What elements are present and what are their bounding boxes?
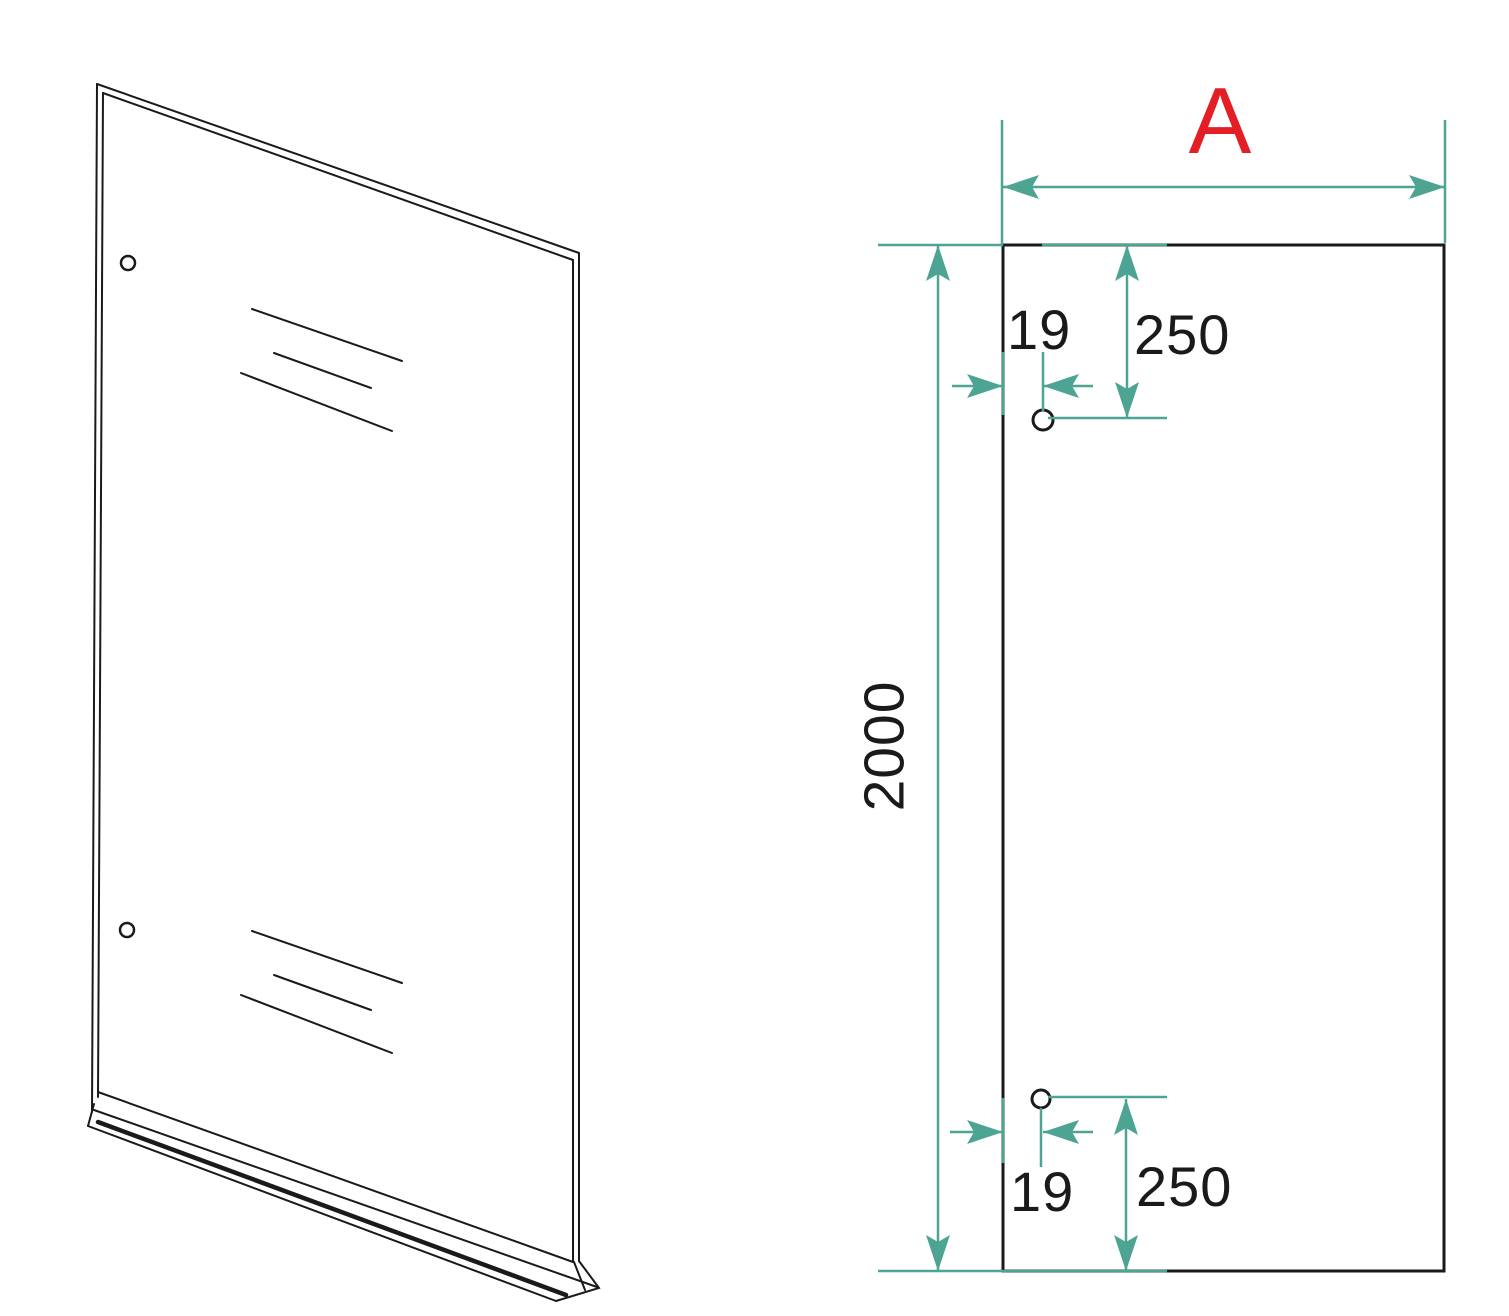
base-foot-left	[88, 1104, 94, 1126]
base-rail-front	[98, 1122, 566, 1295]
technical-drawing-canvas	[0, 0, 1509, 1316]
height-dimension-label: 2000	[857, 681, 914, 812]
top-hole-edge-offset-label: 19	[1007, 302, 1071, 358]
panel-top-edge-outer	[97, 84, 579, 253]
reflection-lines-upper	[241, 309, 402, 431]
perspective-top-hole	[121, 256, 135, 270]
panel-left-edge-outer	[92, 84, 97, 1112]
bottom-hole-bottom-offset-label: 250	[1136, 1159, 1232, 1215]
perspective-bottom-hole	[120, 923, 134, 937]
base-rail-top	[94, 1110, 597, 1287]
panel-left-edge-inner	[98, 93, 103, 1097]
top-hole-top-offset-label: 250	[1134, 307, 1230, 363]
base-rail-bottom	[88, 1126, 556, 1301]
front-panel-outline	[1003, 245, 1444, 1271]
perspective-view	[88, 84, 599, 1301]
width-label-a: A	[1160, 74, 1280, 168]
front-bottom-hole	[1032, 1090, 1050, 1108]
reflection-lines-lower	[241, 931, 402, 1053]
panel-top-edge-inner	[103, 93, 573, 260]
bottom-hole-edge-offset-label: 19	[1010, 1164, 1074, 1220]
dimension-lines	[878, 120, 1445, 1271]
front-top-hole	[1033, 410, 1053, 430]
front-view	[1003, 245, 1444, 1271]
panel-bottom-edge	[98, 1092, 573, 1262]
